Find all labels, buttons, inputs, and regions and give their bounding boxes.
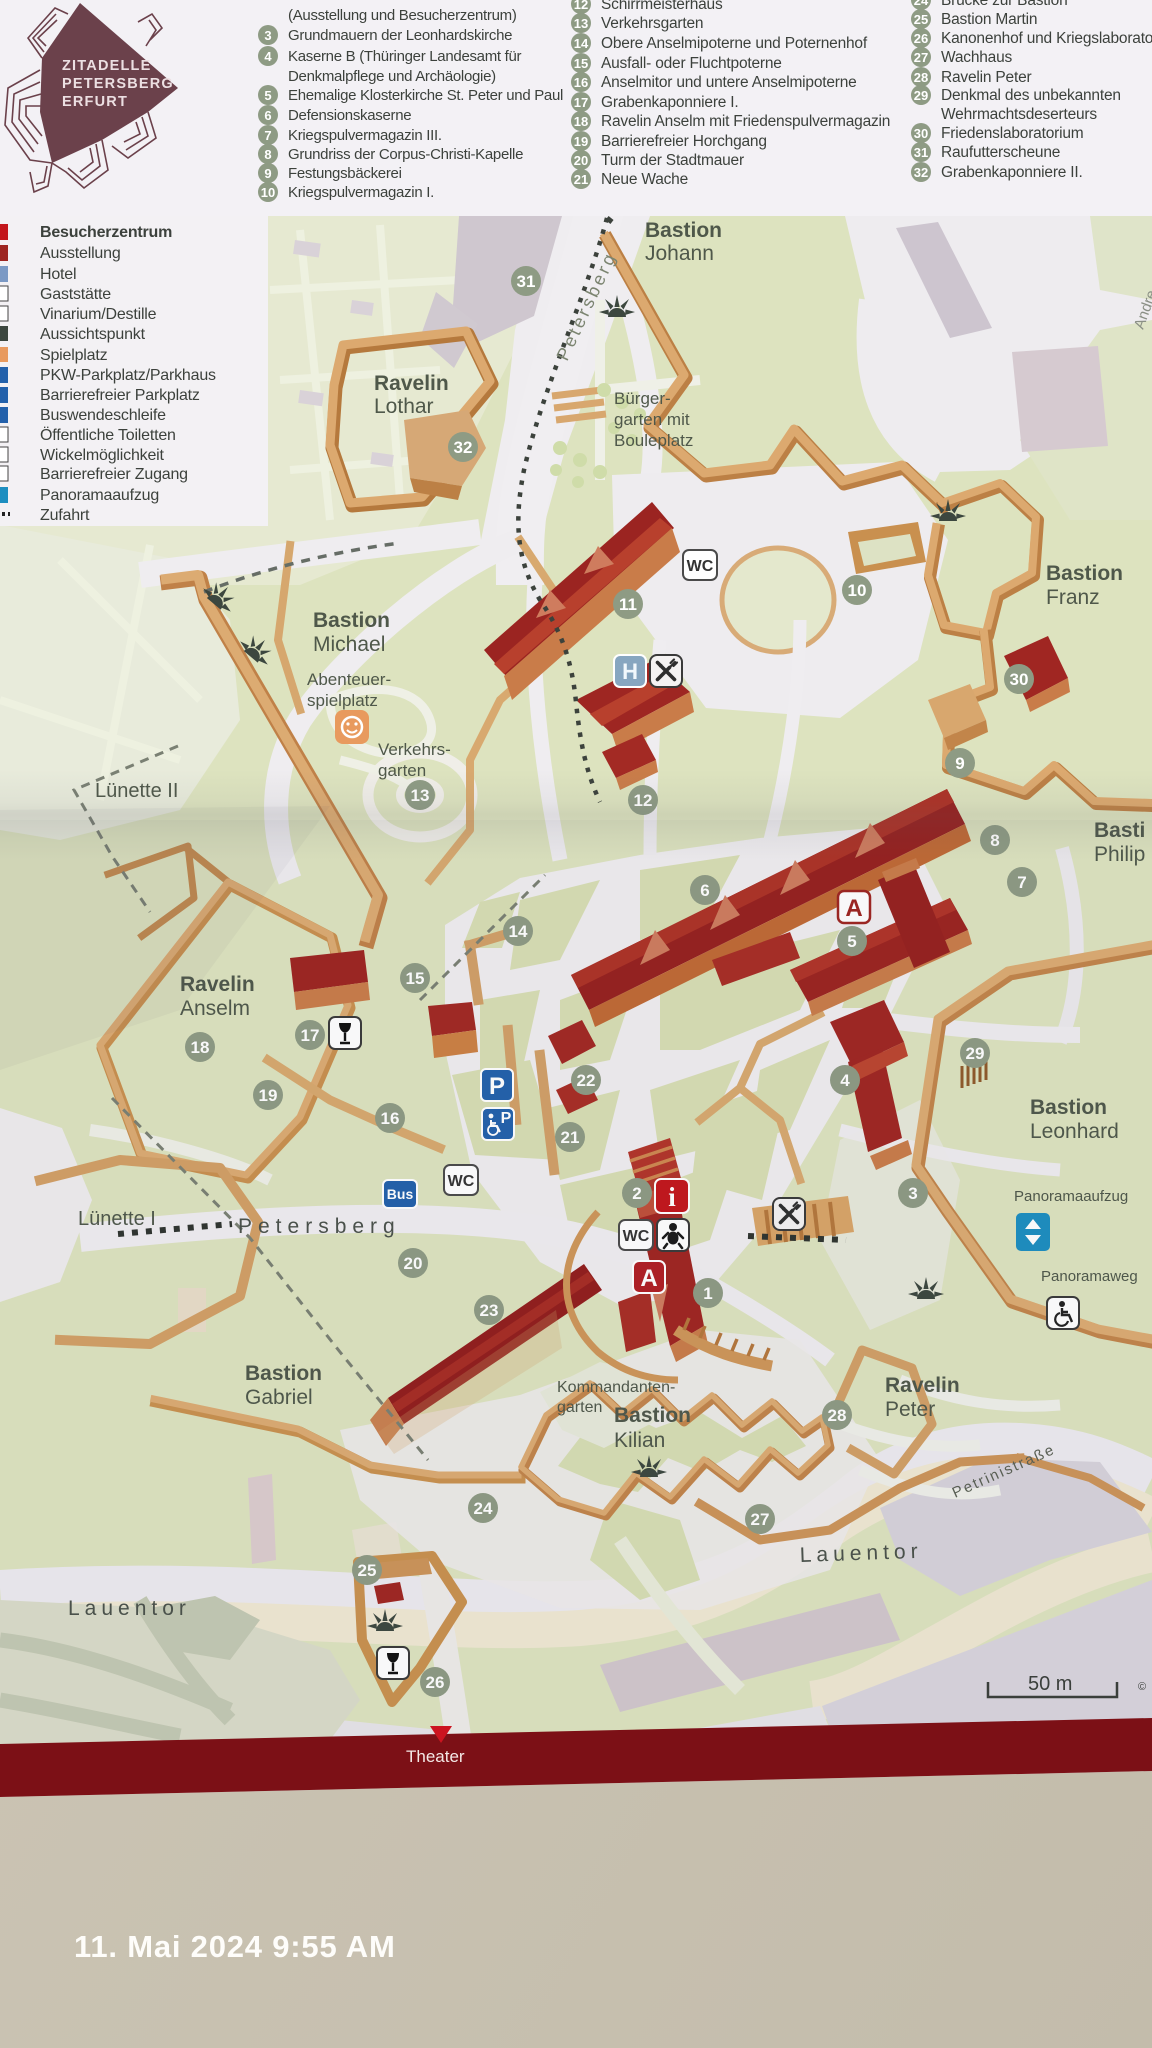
svg-text:Kaserne B (Thüringer Landesamt: Kaserne B (Thüringer Landesamt für — [288, 48, 522, 65]
svg-text:25: 25 — [914, 12, 928, 27]
svg-text:Grundmauern der Leonhardskirch: Grundmauern der Leonhardskirche — [288, 27, 512, 44]
svg-text:Panoramaaufzug: Panoramaaufzug — [40, 487, 159, 504]
svg-text:10: 10 — [261, 185, 275, 200]
svg-text:Verkehrsgarten: Verkehrsgarten — [601, 15, 703, 32]
svg-text:Neue Wache: Neue Wache — [601, 171, 688, 188]
svg-text:Barrierefreier Zugang: Barrierefreier Zugang — [40, 466, 188, 483]
svg-text:20: 20 — [574, 153, 588, 168]
svg-text:Spielplatz: Spielplatz — [40, 347, 108, 364]
svg-text:Kanonenhof und Kriegslaborator: Kanonenhof und Kriegslaboratoriu — [941, 30, 1152, 47]
svg-text:8: 8 — [264, 147, 271, 162]
svg-text:26: 26 — [914, 31, 928, 46]
svg-text:Brücke zur Bastion: Brücke zur Bastion — [941, 0, 1068, 9]
svg-text:Bastion: Bastion — [1046, 562, 1123, 585]
svg-text:6: 6 — [264, 108, 271, 123]
svg-text:14: 14 — [574, 36, 589, 51]
svg-text:Wehrmachtsdeserteurs: Wehrmachtsdeserteurs — [941, 106, 1097, 123]
svg-text:Obere Anselmipoterne und Poter: Obere Anselmipoterne und Poternenhof — [601, 35, 868, 52]
svg-text:Theater: Theater — [406, 1747, 465, 1766]
svg-text:24: 24 — [914, 0, 929, 8]
svg-text:28: 28 — [914, 70, 928, 85]
svg-text:Lothar: Lothar — [374, 395, 434, 418]
svg-text:11. Mai 2024 9:55 AM: 11. Mai 2024 9:55 AM — [74, 1929, 396, 1964]
svg-text:Barrierefreier Horchgang: Barrierefreier Horchgang — [601, 133, 767, 150]
svg-text:Besucherzentrum: Besucherzentrum — [40, 224, 172, 241]
svg-text:Barrierefreier Parkplatz: Barrierefreier Parkplatz — [40, 387, 200, 404]
svg-text:11: 11 — [619, 595, 637, 614]
svg-text:31: 31 — [914, 145, 928, 160]
svg-text:Denkmal des unbekannten: Denkmal des unbekannten — [941, 87, 1121, 104]
svg-text:16: 16 — [574, 75, 588, 90]
svg-text:Bastion: Bastion — [313, 609, 390, 632]
svg-text:Festungsbäckerei: Festungsbäckerei — [288, 165, 402, 182]
svg-text:5: 5 — [264, 88, 271, 103]
svg-text:Wickelmöglichkeit: Wickelmöglichkeit — [40, 447, 164, 464]
svg-text:3: 3 — [264, 28, 271, 43]
svg-text:10: 10 — [848, 581, 867, 600]
svg-text:Johann: Johann — [645, 242, 714, 265]
svg-text:Ravelin: Ravelin — [374, 372, 449, 395]
svg-text:Anselmitor und untere Anselmip: Anselmitor und untere Anselmipoterne — [601, 74, 857, 91]
svg-text:31: 31 — [517, 272, 536, 291]
svg-text:spielplatz: spielplatz — [307, 691, 378, 710]
svg-text:(Ausstellung und Besucherzentr: (Ausstellung und Besucherzentrum) — [288, 7, 517, 24]
svg-text:Zufahrt: Zufahrt — [40, 507, 90, 524]
svg-text:H: H — [622, 659, 638, 684]
svg-text:garten mit: garten mit — [614, 410, 690, 429]
svg-text:PKW-Parkplatz/Parkhaus: PKW-Parkplatz/Parkhaus — [40, 367, 216, 384]
svg-text:Friedenslaboratorium: Friedenslaboratorium — [941, 125, 1083, 142]
svg-text:15: 15 — [574, 56, 588, 71]
svg-text:Bouleplatz: Bouleplatz — [614, 431, 693, 450]
svg-text:Denkmalpflege und Archäologie): Denkmalpflege und Archäologie) — [288, 68, 496, 85]
svg-text:Grabenkaponniere II.: Grabenkaponniere II. — [941, 164, 1083, 181]
svg-text:12: 12 — [574, 0, 588, 12]
svg-text:Raufutterscheune: Raufutterscheune — [941, 144, 1060, 161]
svg-text:Ehemalige Klosterkirche St. Pe: Ehemalige Klosterkirche St. Peter und Pa… — [288, 87, 563, 104]
svg-text:Franz: Franz — [1046, 586, 1100, 609]
svg-text:Hotel: Hotel — [40, 266, 76, 283]
svg-text:Schirrmeisterhaus: Schirrmeisterhaus — [601, 0, 723, 13]
svg-text:Abenteuer-: Abenteuer- — [307, 670, 391, 689]
svg-text:ERFURT: ERFURT — [62, 94, 128, 110]
svg-text:Grabenkaponniere I.: Grabenkaponniere I. — [601, 94, 739, 111]
svg-text:13: 13 — [574, 16, 588, 31]
svg-text:30: 30 — [914, 126, 928, 141]
svg-text:18: 18 — [574, 114, 588, 129]
svg-text:27: 27 — [914, 50, 928, 65]
svg-text:29: 29 — [914, 88, 928, 103]
svg-text:Wachhaus: Wachhaus — [941, 49, 1013, 66]
svg-text:Michael: Michael — [313, 633, 385, 656]
svg-text:32: 32 — [914, 165, 928, 180]
svg-text:30: 30 — [1010, 670, 1029, 689]
svg-text:Bürger-: Bürger- — [614, 389, 671, 408]
svg-text:Aussichtspunkt: Aussichtspunkt — [40, 326, 146, 343]
svg-text:4: 4 — [264, 49, 272, 64]
svg-text:ZITADELLE: ZITADELLE — [62, 58, 151, 74]
svg-text:Bastion: Bastion — [645, 219, 722, 242]
svg-text:Gaststätte: Gaststätte — [40, 286, 111, 303]
svg-text:Ausstellung: Ausstellung — [40, 245, 121, 262]
svg-text:7: 7 — [264, 128, 271, 143]
svg-text:Grundriss der Corpus-Christi-K: Grundriss der Corpus-Christi-Kapelle — [288, 146, 523, 163]
svg-text:Verkehrs-: Verkehrs- — [378, 740, 451, 759]
svg-text:9: 9 — [264, 166, 271, 181]
svg-text:Kriegspulvermagazin III.: Kriegspulvermagazin III. — [288, 127, 442, 144]
svg-text:Ausfall- oder Fluchtpoterne: Ausfall- oder Fluchtpoterne — [601, 55, 782, 72]
svg-text:Bastion Martin: Bastion Martin — [941, 11, 1037, 28]
svg-text:Öffentliche Toiletten: Öffentliche Toiletten — [40, 426, 176, 444]
svg-text:19: 19 — [574, 134, 588, 149]
svg-text:17: 17 — [574, 95, 588, 110]
svg-text:Defensionskaserne: Defensionskaserne — [288, 107, 411, 124]
svg-text:Vinarium/Destille: Vinarium/Destille — [40, 306, 157, 323]
svg-text:Turm der Stadtmauer: Turm der Stadtmauer — [601, 152, 744, 169]
svg-text:32: 32 — [454, 438, 473, 457]
svg-text:21: 21 — [574, 172, 588, 187]
svg-text:PETERSBERG: PETERSBERG — [62, 76, 174, 92]
svg-text:Ravelin Peter: Ravelin Peter — [941, 69, 1031, 86]
svg-text:Buswendeschleife: Buswendeschleife — [40, 407, 166, 424]
svg-text:Kriegspulvermagazin I.: Kriegspulvermagazin I. — [288, 184, 434, 201]
svg-text:Ravelin Anselm mit Friedenspul: Ravelin Anselm mit Friedenspulvermagazin — [601, 113, 890, 130]
